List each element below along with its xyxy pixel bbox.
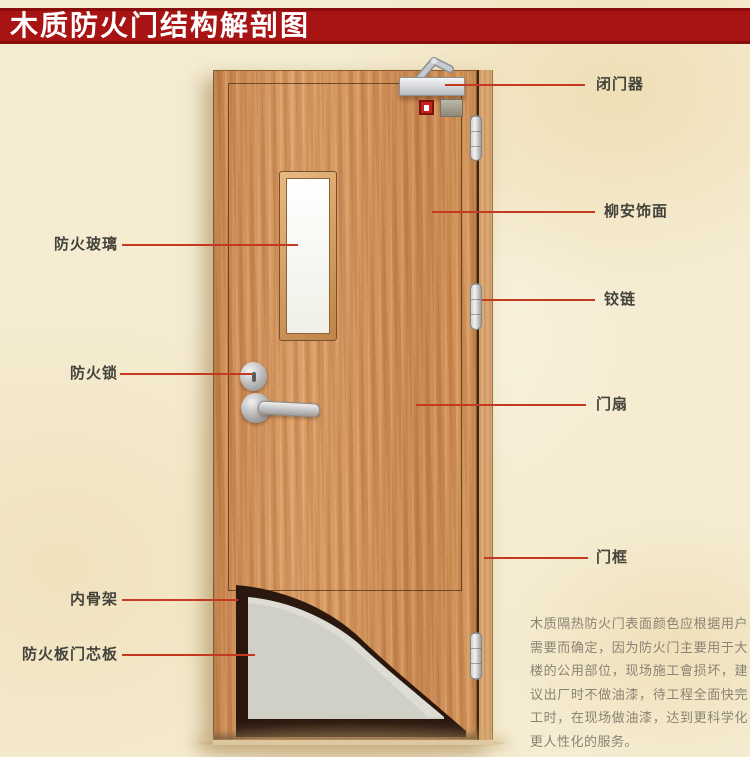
leader-fire-lock: [120, 373, 252, 375]
label-veneer: 柳安饰面: [604, 204, 668, 220]
leader-door-leaf: [416, 404, 586, 406]
door-illustration: [213, 70, 493, 745]
page-title: 木质防火门结构解剖图: [10, 8, 310, 44]
hinge-middle: [470, 283, 482, 330]
hinge-bottom: [470, 632, 482, 680]
label-core-board: 防火板门芯板: [10, 647, 118, 663]
label-door-leaf: 门扇: [596, 397, 628, 413]
leader-door-frame: [484, 557, 588, 559]
leader-door-closer: [445, 84, 585, 86]
fire-glass-window: [279, 171, 337, 341]
closer-mount-plate: [440, 99, 463, 117]
title-banner: 木质防火门结构解剖图: [0, 8, 750, 44]
keyhole-icon: [252, 372, 256, 382]
infographic-canvas: 木质防火门结构解剖图: [0, 0, 750, 757]
leader-hinge: [478, 299, 595, 301]
fire-glass-pane: [286, 178, 330, 334]
fire-lock-cylinder: [240, 362, 267, 391]
leader-core-board: [122, 654, 255, 656]
description-text: 木质隔热防火门表面颜色应根据用户需要而确定，因为防火门主要用于大楼的公用部位，现…: [530, 612, 748, 753]
hinge-top: [470, 115, 482, 161]
label-hinge: 铰链: [604, 292, 636, 308]
label-door-frame: 门框: [596, 550, 628, 566]
floor-shadow: [198, 737, 504, 749]
alarm-indicator-light: [424, 105, 429, 111]
leader-veneer: [432, 211, 595, 213]
leader-fire-glass: [122, 244, 298, 246]
door-panel-groove: [228, 83, 462, 591]
label-door-closer: 闭门器: [596, 77, 644, 93]
door-closer: [399, 77, 465, 96]
alarm-indicator: [419, 100, 434, 115]
leader-inner-skeleton: [122, 599, 238, 601]
label-fire-lock: 防火锁: [18, 366, 118, 382]
door-cutaway-section: [214, 579, 478, 741]
label-inner-skeleton: 内骨架: [18, 592, 118, 608]
label-fire-glass: 防火玻璃: [18, 237, 118, 253]
